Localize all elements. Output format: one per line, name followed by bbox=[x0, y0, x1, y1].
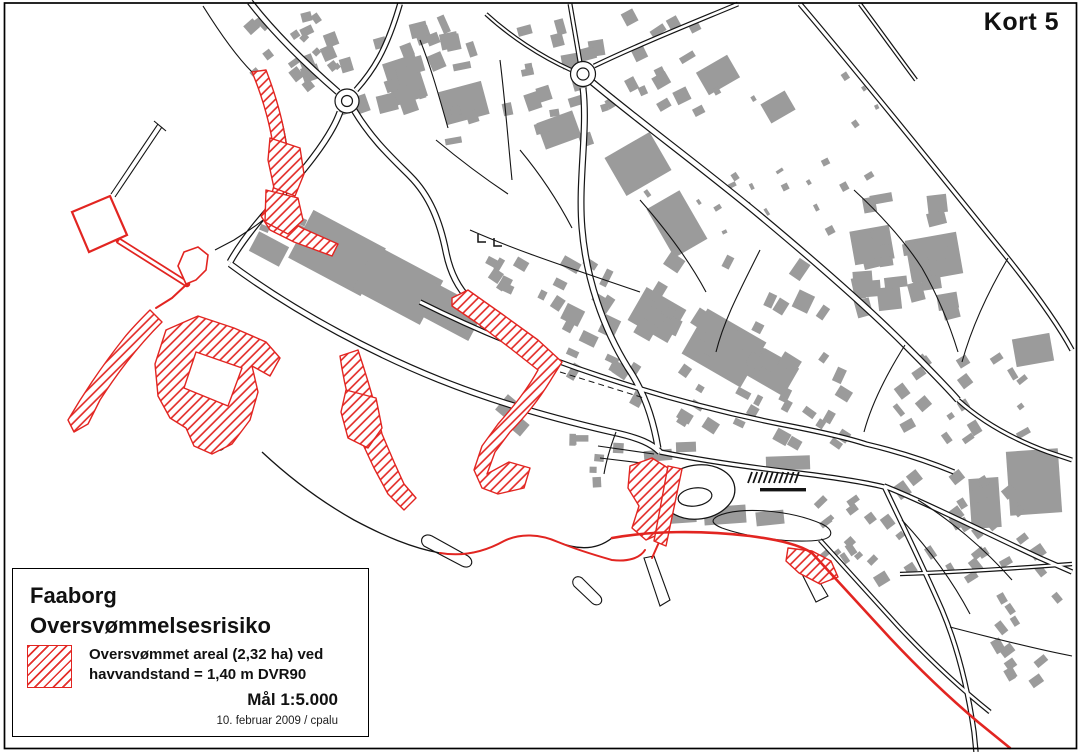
map-scale-label: Mål 1:5.000 bbox=[247, 690, 338, 710]
legend-item-label: Oversvømmet areal (2,32 ha) ved havvands… bbox=[89, 645, 323, 685]
map-sheet: Kort 5 Faaborg Oversvømmelsesrisiko Over… bbox=[0, 0, 1081, 752]
map-legend: Faaborg Oversvømmelsesrisiko Oversvømmet… bbox=[12, 568, 369, 737]
flood-hatch-swatch bbox=[27, 645, 72, 688]
map-date-credit: 10. februar 2009 / cpalu bbox=[217, 715, 338, 727]
sheet-number-label: Kort 5 bbox=[984, 8, 1059, 37]
legend-item-line2: havvandstand = 1,40 m DVR90 bbox=[89, 665, 323, 685]
legend-item-line1: Oversvømmet areal (2,32 ha) ved bbox=[89, 645, 323, 665]
legend-title: Faaborg Oversvømmelsesrisiko bbox=[30, 581, 271, 641]
legend-title-line1: Faaborg bbox=[30, 581, 271, 611]
legend-title-line2: Oversvømmelsesrisiko bbox=[30, 611, 271, 641]
